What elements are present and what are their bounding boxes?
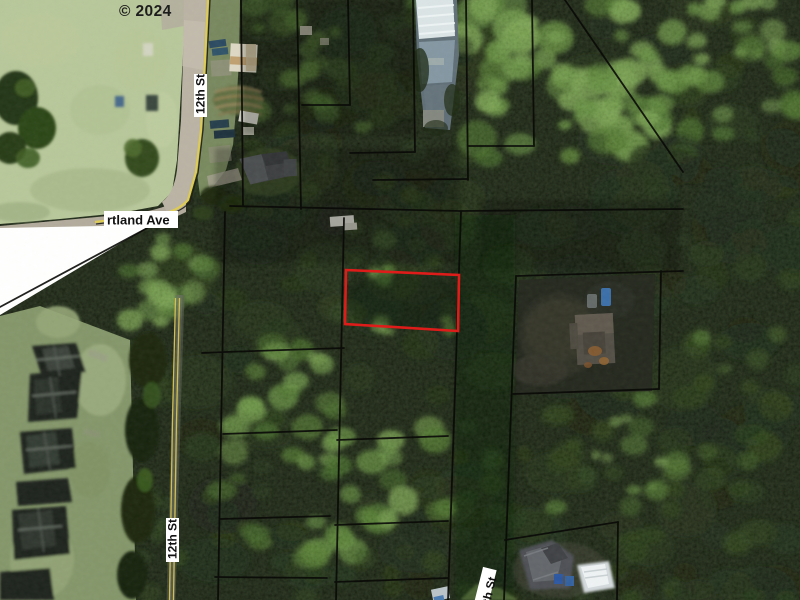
- svg-text:rtland Ave: rtland Ave: [107, 213, 170, 228]
- svg-text:12th St: 12th St: [166, 519, 180, 559]
- svg-text:© 2024: © 2024: [119, 3, 172, 20]
- svg-text:12th St: 12th St: [194, 74, 208, 114]
